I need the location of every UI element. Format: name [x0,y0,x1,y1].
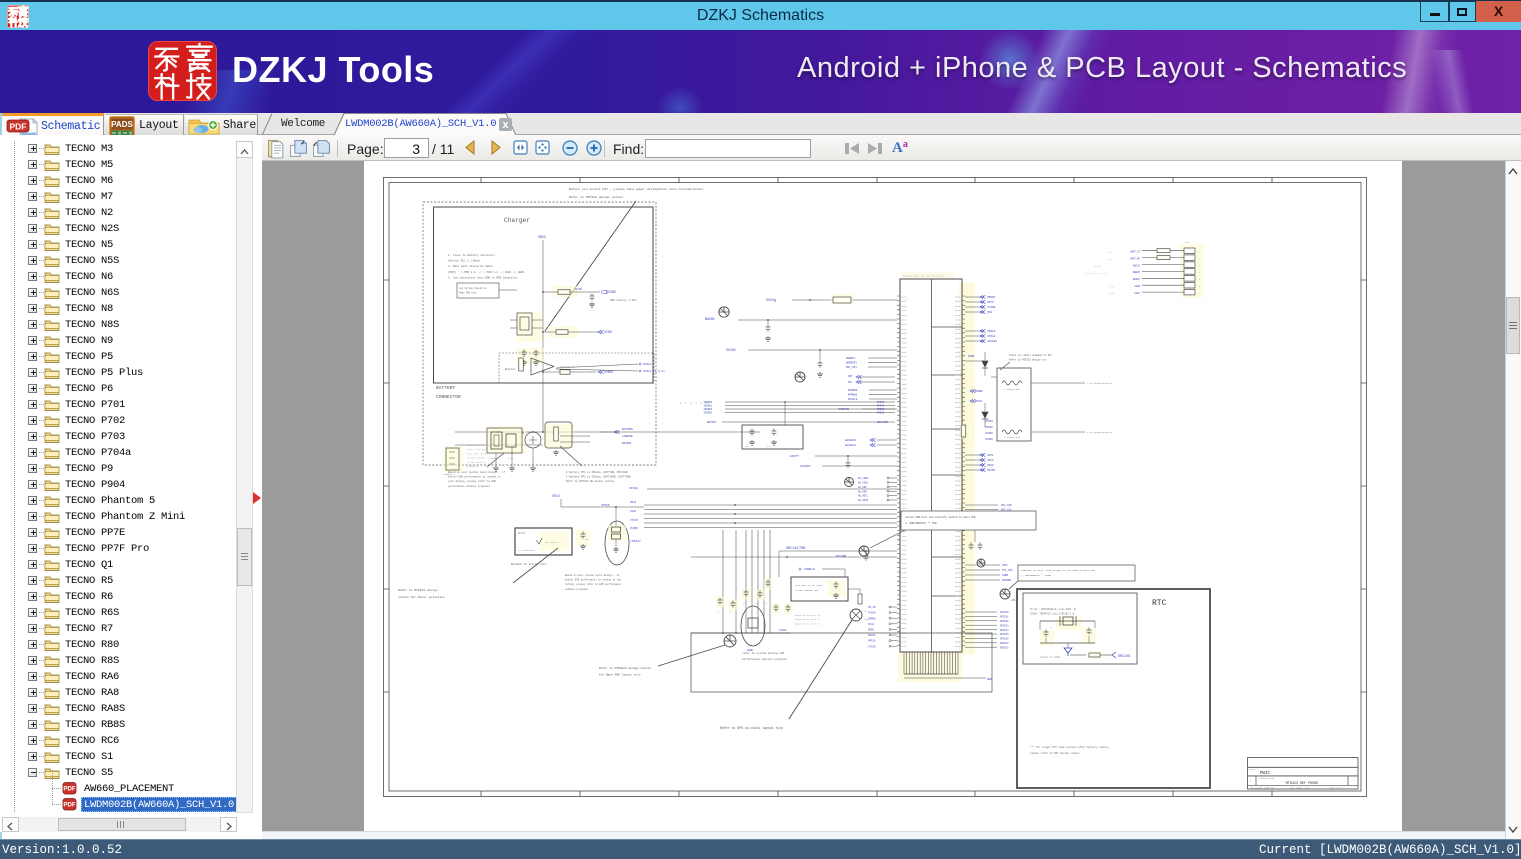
svg-text:as not refer to: as not refer to [467,461,486,464]
svg-text:ISENSE: ISENSE [622,435,633,438]
svg-text:Mode CHG over.: Mode CHG over. [459,292,478,295]
svg-text:performance improve proposal: performance improve proposal [742,657,788,661]
svg-text:(I)(F): (I)(F) [1108,285,1115,288]
svg-text:(D): (D) [1108,258,1112,261]
svg-text:2. Make path should be 10mil: 2. Make path should be 10mil [448,264,494,268]
svg-text:2'battery PPC is 350ohm, BV6T1: 2'battery PPC is 350ohm, BV6T100B, BV6T7… [566,476,631,479]
svg-text:Based on over system level de: Based on over system level design , if [565,574,620,577]
svg-text:VCHG: VCHG [604,330,612,334]
svg-text:SPI_CSN: SPI_CSN [1001,504,1012,507]
svg-text:Refer to MT6323 design: Refer to MT6323 design [398,588,438,592]
svg-text:SW? A(NTC)+-?: SW? A(NTC)+-? [545,541,561,544]
svg-text:RTCVBB: RTCVBB [836,555,846,558]
svg-text:enhance proposal: enhance proposal [565,588,589,591]
svg-text:AU_VIN0: AU_VIN0 [858,477,869,480]
svg-text:notice for Zener selection: notice for Zener selection [398,595,445,599]
svg-text:(MOS) : (.5MO 1.A. -) (.5KO 1.: (MOS) : (.5MO 1.A. -) (.5KO 1.2 -) (KAO … [448,270,524,274]
svg-text:for Bank GND layout rule: for Bank GND layout rule [599,673,641,677]
svg-text:CMPMU: CMPMU [868,617,876,620]
svg-text:5VUSB: 5VUSB [606,290,616,294]
svg-text:KCOL0: KCOL0 [643,363,652,366]
svg-text:SRCLK8: SRCLK8 [1118,655,1130,659]
svg-text:VPA: VPA [987,311,992,314]
svg-text:KPROW0: KPROW0 [848,389,858,392]
svg-text:BATTERY: BATTERY [436,385,456,391]
svg-text:5VChg: 5VChg [766,298,776,303]
svg-text:GPIO11: GPIO11 [1000,616,1009,619]
svg-text:PDF: PDF [63,802,76,809]
svg-text:Charger: Charger [504,217,530,224]
svg-text:KCOL1 (1,2,3): KCOL1 (1,2,3) [643,369,665,373]
svg-text:battery therm: battery therm [467,444,484,447]
svg-text:Refer to MTK6323 design notice: Refer to MTK6323 design notice [599,666,651,670]
svg-text:KPROW: KPROW [975,390,983,393]
svg-text:KPCOL0: KPCOL0 [848,398,858,401]
svg-text:Refer to GPS co-clock layout r: Refer to GPS co-clock layout rule [720,726,783,730]
svg-text:2'battery PPC is 350ohm, BV6T7: 2'battery PPC is 350ohm, BV6T70B, BV6T80… [566,471,628,474]
svg-text:UART_RX: UART_RX [1130,257,1141,260]
svg-text:***: *** [1351,780,1355,783]
svg-text:PWIC: PWIC [1260,772,1271,776]
svg-text:performance enhance proposal: performance enhance proposal [448,485,491,488]
svg-text:please refer to RTC design not: please refer to RTC design notice [1030,752,1080,755]
svg-text:GPIO6: GPIO6 [877,412,885,415]
svg-text:VDRM: VDRM [968,355,975,358]
svg-text:XC-XG : DXGX34343(A) xxxx 836: XC-XG : DXGX34343(A) xxxx 8367- B [1030,608,1076,611]
svg-text:GPIO16: GPIO16 [1000,638,1009,641]
svg-text:UART_TX: UART_TX [1130,251,1141,254]
svg-text:Before you select KIT , please: Before you select KIT , please take powe… [569,187,705,191]
svg-text:your design, please refer to: your design, please refer to ESD [448,480,497,483]
svg-text:Clock Cs-XTAL: Clock Cs-XTAL [1040,655,1061,659]
svg-text:CONNECTOR: CONNECTOR [436,394,461,400]
svg-text:U5?04: U5?04 [518,532,526,535]
svg-text:GPIO12: GPIO12 [1000,620,1009,623]
svg-text:to MMS AVDDMIC pin: to MMS AVDDMIC pin [795,589,819,592]
svg-text:ISINK3: ISINK3 [703,412,712,415]
svg-text:About R1/C1 xxxx xx: About R1/C1 xxxx xx [795,618,821,621]
svg-text:VCAMD: VCAMD [985,438,993,441]
svg-text:Between IC and B+ pin?: Between IC and B+ pin? [511,562,547,566]
svg-text:PDF: PDF [10,121,27,131]
svg-text:GPIO10: GPIO10 [1000,611,1009,614]
svg-text:CHRIND: CHRIND [1002,579,1012,582]
svg-text:ISINK: ISINK [985,426,993,429]
svg-text:1.8(4)3006230250/4R: 1.8(4)3006230250/4R [1087,382,1113,385]
svg-text:better ESD performance is nee: better ESD performance is needed in low [565,579,622,582]
svg-text:Sheet 3 of 11: Sheet 3 of 11 [1330,787,1343,789]
svg-text:Buzzer: Buzzer [505,368,516,371]
svg-text:SWDIO: SWDIO [1133,271,1141,274]
svg-text:SWCLK: SWCLK [1133,264,1141,267]
svg-text:rating, please refer to ESD: rating, please refer to ESD performance [565,583,622,586]
svg-text:GPIO13: GPIO13 [1000,624,1009,627]
svg-text:Refer to MT6323 design notice: Refer to MT6323 design notice [569,195,623,199]
svg-text:About R2/C2 xxxx xx: About R2/C2 xxxx xx [795,622,821,625]
svg-text:C?: C? [757,602,759,605]
svg-text:2. ONE/ONEFOLD ** PCB: 2. ONE/ONEFOLD ** PCB [905,522,937,525]
svg-text:VCN18: VCN18 [868,612,876,615]
svg-text:CONELO: CONELO [804,568,815,571]
svg-text:VTCXO: VTCXO [630,519,638,522]
svg-text:VAUD28: VAUD28 [987,340,997,343]
svg-text:VIBR: VIBR [1002,574,1009,577]
svg-text:UVLO: UVLO [552,494,560,498]
svg-text:Refer to MT6323 HW design noti: Refer to MT6323 HW design notice [566,480,615,483]
svg-text:3.3Kohm/10uH: 3.3Kohm/10uH [1004,436,1020,439]
svg-text:VM12: VM12 [630,501,637,504]
svg-text:AUXADC1: AUXADC1 [845,444,856,447]
svg-text:SYSRSTB: SYSRSTB [838,408,849,411]
svg-text:PWRKEY: PWRKEY [846,357,856,360]
svg-text:Based on over system level de: Based on over system level design , if [448,471,506,474]
svg-text:VSIM1: VSIM1 [987,469,995,472]
svg-text:LED1: LED1 [1134,292,1140,295]
svg-text:PADS: PADS [111,120,133,129]
svg-text:Schematic Name:: Schematic Name: [1259,778,1275,780]
svg-text:VA28: VA28 [630,510,637,513]
svg-text:L5501?: L5501? [630,540,641,543]
svg-text:ACCDET: ACCDET [800,465,811,468]
svg-text:SRCLKC?SR: SRCLKC?SR [786,547,806,551]
svg-text:C?: C? [743,602,745,605]
svg-text:better ESD performance is nee: better ESD performance is needed in [448,476,501,479]
svg-text:1.8(4)3006230250/4R: 1.8(4)3006230250/4R [1087,431,1113,434]
svg-text:RST_KEY: RST_KEY [846,366,857,369]
svg-text:VTCXO: VTCXO [868,645,876,648]
svg-text:VCAMD: VCAMD [630,527,638,530]
svg-text:HOMEKEY: HOMEKEY [846,362,857,365]
svg-text:SCL: SCL [848,381,853,384]
svg-text:VIO18: VIO18 [987,335,996,338]
svg-text:+5%: +5% [1011,599,1016,602]
svg-text:GPIO18: GPIO18 [1000,646,1009,649]
svg-text:SV1D0: SV1D0 [726,348,736,352]
svg-text:1. Close to Battery Connector,: 1. Close to Battery Connector, [448,253,496,257]
svg-text:*** for longer RTC time sustai: *** for longer RTC time sustain after ba… [1030,746,1110,749]
svg-text:SRCSC: SRCSC [868,634,876,637]
svg-text:INT: INT [848,375,853,378]
svg-text:C?: C? [765,602,767,605]
svg-text:Size Document Number Rev: Size Document Number Rev [1250,787,1274,789]
svg-text:EINT?: EINT? [790,455,799,458]
svg-text:RT-M: RT-M [508,457,514,460]
svg-text:(ntc 10k) to MT: (ntc 10k) to MT [467,452,486,455]
svg-text:VCAMA: VCAMA [985,432,993,435]
svg-text:AU_OUTR: AU_OUTR [858,499,869,502]
svg-text:indicate TVS ball, used xd-pai: indicate TVS ball, used xd-pair to run 3… [1021,569,1095,572]
svg-text:C5506: C5506 [601,504,610,507]
svg-text:this is the path: this is the path [467,448,488,451]
svg-text:USB rating: 1.0A?: USB rating: 1.0A? [610,298,637,302]
svg-text:RESET: RESET [1133,278,1141,281]
svg-text:32kHz: TWF6T523 xxxx_(T36(B)*): 32kHz: TWF6T523 xxxx_(T36(B)*) W [1030,613,1075,616]
svg-text:C?: C? [730,610,732,613]
svg-text:BAVDD: BAVDD [705,317,715,321]
svg-text:refer to system analog LDO: refer to system analog LDO [742,651,784,655]
svg-text:AU_HSP: AU_HSP [858,486,867,489]
svg-text:3.3Kohm/10uH: 3.3Kohm/10uH [1004,388,1020,391]
svg-text:26M: 26M [864,618,869,621]
svg-text:VPROC: VPROC [987,296,996,299]
svg-text:SDA0: SDA0 [868,629,875,632]
svg-text:Resistor(R): Resistor(R) [560,365,574,368]
svg-text:(I)(O): (I)(O) [1094,265,1101,268]
svg-text:VRTC: VRTC [1002,564,1009,567]
svg-text:BATON: BATON [622,442,631,445]
svg-text:VCN33: VCN33 [985,420,993,423]
svg-text:MT6323 REF PHONE: MT6323 REF PHONE [1286,782,1319,786]
svg-text:VCXO must to be close: VCXO must to be close [795,584,823,587]
svg-text:VCORE: VCORE [987,306,996,309]
svg-text:3. low capacitive than BOB to: 3. low capacitive than BOB to MOS Capaci… [448,275,518,279]
svg-text:KPROW1: KPROW1 [848,394,858,397]
svg-text:connector?: connector? [467,465,480,468]
svg-text:SRCLKEN: SRCLKEN [877,421,888,424]
svg-text:TITLE:: TITLE: [1249,769,1255,771]
svg-text:ACIN: ACIN [575,288,582,291]
svg-text:GPIO15: GPIO15 [1000,633,1009,636]
svg-text:battery connect: battery connect [467,457,486,460]
svg-text:VIO28: VIO28 [779,629,787,632]
svg-text:CM_IO: CM_IO [868,606,876,609]
svg-text:2. ONE/ONEFOLD ** 32KHZ: 2. ONE/ONEFOLD ** 32KHZ [1021,574,1052,577]
svg-text:(Below) BC1.2 (15mm): (Below) BC1.2 (15mm) [448,259,481,263]
svg-text:J?00: J?00 [1184,241,1190,244]
svg-text:AU_HSN: AU_HSN [858,490,867,493]
svg-text:VSYS: VSYS [987,301,994,304]
svg-text:AU_OUTL: AU_OUTL [858,495,869,498]
svg-text:unlock PWR bell and identify s: unlock PWR bell and identify switch to m… [905,516,976,519]
svg-text:C?: C? [717,610,719,613]
svg-text:VGP2: VGP2 [987,459,994,462]
svg-text:(D): (D) [1108,251,1112,254]
svg-text:AUXADC0: AUXADC0 [845,439,856,442]
svg-text:BATSNS: BATSNS [622,428,633,431]
svg-text:VBUS: VBUS [538,235,546,239]
svg-text:VIO28: VIO28 [987,330,996,333]
svg-text:GPIO17: GPIO17 [1000,642,1009,645]
svg-text:Place xxx admin command to RTK: Place xxx admin command to RTK [1009,354,1053,357]
svg-text:(I)(F): (I)(F) [1108,292,1115,295]
svg-text:AU_VIN1: AU_VIN1 [858,482,869,485]
svg-text:RTC_32K: RTC_32K [1002,569,1013,572]
svg-text:IC-LIGHTNING: IC-LIGHTNING [518,549,534,552]
svg-text:SCL0: SCL0 [868,623,875,626]
svg-text:VIO18: VIO18 [629,487,638,490]
svg-text:KPCOL: KPCOL [975,400,983,403]
svg-text:Date: Sunday , 2019: Date: Sunday , 2019 [1290,787,1309,789]
svg-text:GND: GND [987,678,992,681]
svg-text:sop string should be: sop string should be [459,287,487,290]
svg-text:About R0/C0 xxxx xx: About R0/C0 xxxx xx [795,614,821,617]
svg-text:RTC: RTC [1152,599,1167,608]
svg-text:LED0: LED0 [1134,285,1140,288]
svg-text:Refer to MT6323 design xxx: Refer to MT6323 design xxx [1009,359,1047,362]
svg-text:VGP1: VGP1 [987,454,994,457]
svg-text:WDTRST: WDTRST [707,421,717,424]
svg-text:GPIO14: GPIO14 [1000,629,1009,632]
svg-text:VGP3: VGP3 [987,464,994,467]
svg-text:VRF18: VRF18 [868,640,876,643]
svg-text:PDF: PDF [63,786,76,793]
svg-text:( G P I O P R O C ): ( G P I O P R O C ) [1085,272,1108,275]
